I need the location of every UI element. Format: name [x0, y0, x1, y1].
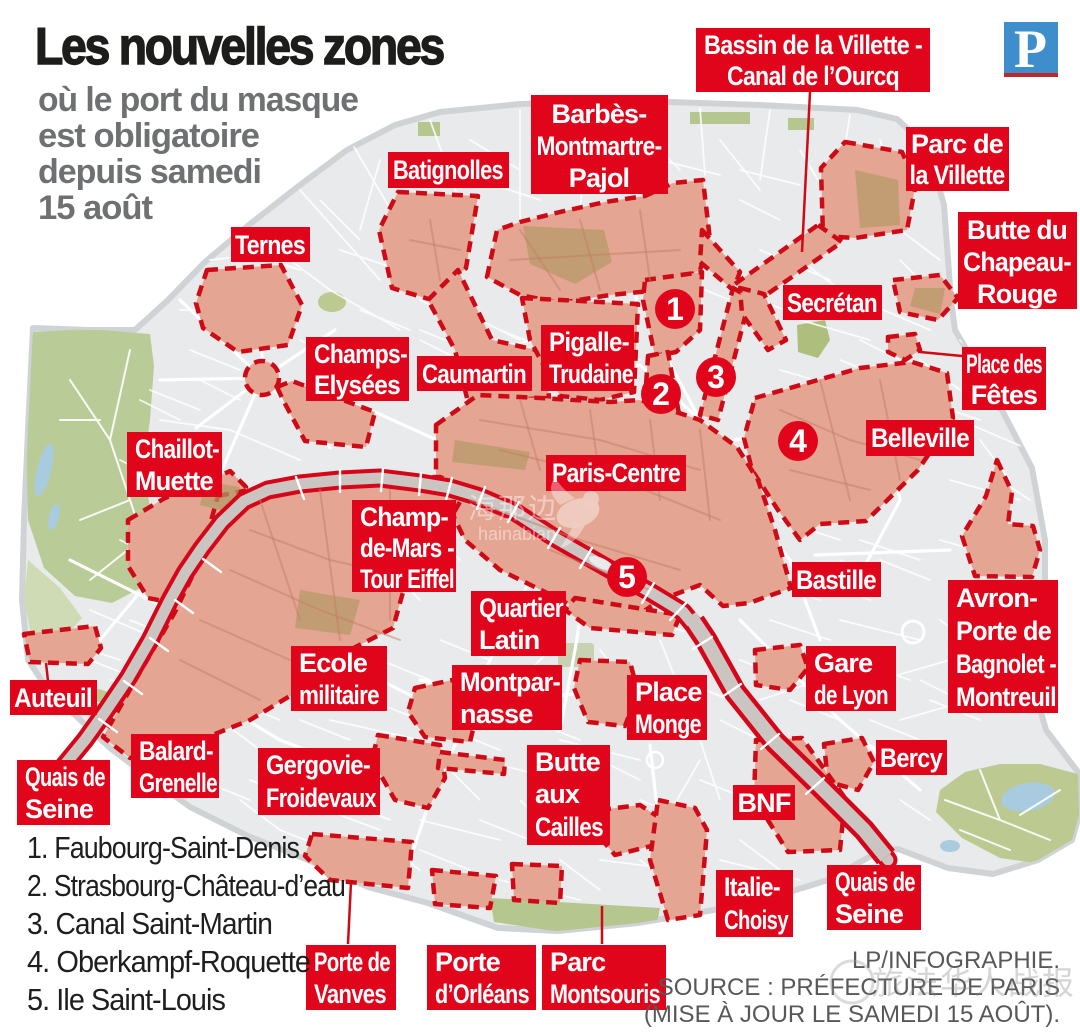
svg-text:Quais de: Quais de [25, 762, 106, 792]
svg-text:militaire: militaire [299, 680, 380, 710]
svg-text:1. Faubourg-Saint-Denis: 1. Faubourg-Saint-Denis [27, 830, 299, 865]
svg-text:Porte de: Porte de [956, 616, 1052, 646]
svg-text:Place: Place [635, 677, 702, 707]
svg-text:Chaillot-: Chaillot- [135, 434, 219, 464]
svg-text:Champ-: Champ- [360, 502, 448, 532]
svg-text:2. Strasbourg-Château-d’eau: 2. Strasbourg-Château-d’eau [27, 868, 345, 903]
svg-text:Avron-: Avron- [956, 583, 1037, 613]
svg-text:Monge: Monge [635, 709, 702, 739]
svg-text:Pajol: Pajol [569, 163, 630, 193]
svg-text:est obligatoire: est obligatoire [38, 117, 259, 155]
svg-text:Seine: Seine [835, 899, 904, 929]
svg-text:P: P [1014, 19, 1047, 79]
svg-text:Montpar-: Montpar- [460, 667, 560, 697]
svg-text:Vanves: Vanves [314, 979, 386, 1009]
svg-text:où le port du masque: où le port du masque [38, 81, 358, 119]
svg-text:Choisy: Choisy [724, 905, 789, 935]
svg-text:Parc de: Parc de [911, 129, 1004, 159]
svg-text:Grenelle: Grenelle [139, 768, 218, 798]
svg-text:Ternes: Ternes [235, 230, 305, 260]
svg-text:Bastille: Bastille [796, 565, 877, 595]
svg-text:Barbès-: Barbès- [552, 99, 647, 129]
svg-text:Paris-Centre: Paris-Centre [552, 458, 681, 488]
svg-text:Batignolles: Batignolles [393, 155, 503, 185]
svg-text:Bassin de la Villette -: Bassin de la Villette - [704, 30, 922, 60]
svg-text:Canal de l’Ourcq: Canal de l’Ourcq [727, 61, 899, 91]
svg-text:Secrétan: Secrétan [787, 288, 877, 318]
svg-text:Montreuil: Montreuil [956, 682, 1056, 712]
svg-text:Gare: Gare [814, 648, 873, 678]
svg-text:Pigalle-: Pigalle- [549, 327, 629, 357]
svg-text:Gergovie-: Gergovie- [266, 750, 370, 780]
svg-text:hainabian: hainabian [478, 524, 556, 544]
svg-text:Ecole: Ecole [299, 648, 368, 678]
svg-text:Tour Eiffel: Tour Eiffel [360, 564, 454, 594]
svg-text:Muette: Muette [135, 466, 214, 496]
svg-text:Fêtes: Fêtes [971, 380, 1038, 410]
svg-text:5. Ile Saint-Louis: 5. Ile Saint-Louis [27, 982, 225, 1017]
svg-text:1: 1 [666, 291, 684, 327]
svg-text:Seine: Seine [25, 794, 94, 824]
svg-text:Bercy: Bercy [880, 743, 943, 773]
svg-text:Butte du: Butte du [967, 215, 1067, 245]
svg-text:BNF: BNF [737, 788, 790, 818]
svg-text:4: 4 [789, 423, 807, 459]
svg-text:Auteuil: Auteuil [14, 683, 92, 713]
svg-text:Latin: Latin [479, 625, 540, 655]
svg-text:Quartier: Quartier [479, 593, 564, 623]
svg-text:Trudaine: Trudaine [549, 359, 634, 389]
svg-text:3: 3 [707, 359, 725, 395]
svg-text:Les nouvelles zones: Les nouvelles zones [35, 18, 444, 76]
svg-text:Parc: Parc [550, 947, 606, 977]
svg-text:la Villette: la Villette [910, 160, 1006, 190]
svg-text:de-Mars -: de-Mars - [360, 533, 454, 563]
svg-text:Montmartre-: Montmartre- [537, 131, 662, 161]
svg-text:Porte de: Porte de [314, 947, 391, 977]
svg-text:Porte: Porte [435, 947, 501, 977]
svg-text:Champs-: Champs- [314, 339, 407, 369]
svg-text:aux: aux [535, 779, 580, 809]
svg-text:2: 2 [652, 376, 670, 412]
svg-text:Chapeau-: Chapeau- [963, 247, 1071, 277]
svg-text:Butte: Butte [535, 747, 601, 777]
svg-text:Cailles: Cailles [535, 812, 603, 842]
svg-text:Place des: Place des [966, 349, 1042, 379]
svg-text:Italie-: Italie- [724, 872, 780, 902]
svg-text:15 août: 15 août [38, 189, 153, 227]
svg-text:3. Canal Saint-Martin: 3. Canal Saint-Martin [27, 906, 272, 941]
svg-text:depuis samedi: depuis samedi [38, 153, 261, 191]
svg-text:4. Oberkampf-Roquette: 4. Oberkampf-Roquette [27, 944, 310, 979]
svg-text:Bagnolet -: Bagnolet - [956, 649, 1056, 679]
svg-text:nasse: nasse [460, 699, 533, 729]
svg-text:旅法华人战报: 旅法华人战报 [872, 965, 1076, 1001]
svg-text:Froidevaux: Froidevaux [266, 783, 377, 813]
svg-text:5: 5 [618, 559, 636, 595]
svg-text:Belleville: Belleville [871, 423, 970, 453]
svg-text:Balard-: Balard- [139, 736, 213, 766]
svg-text:d’Orléans: d’Orléans [435, 979, 529, 1009]
svg-text:Caumartin: Caumartin [422, 359, 526, 389]
svg-text:海那边: 海那边 [468, 493, 558, 524]
svg-text:de Lyon: de Lyon [814, 680, 888, 710]
svg-text:Rouge: Rouge [977, 279, 1058, 309]
svg-text:Elysées: Elysées [314, 370, 400, 400]
svg-text:Quais de: Quais de [835, 867, 916, 897]
